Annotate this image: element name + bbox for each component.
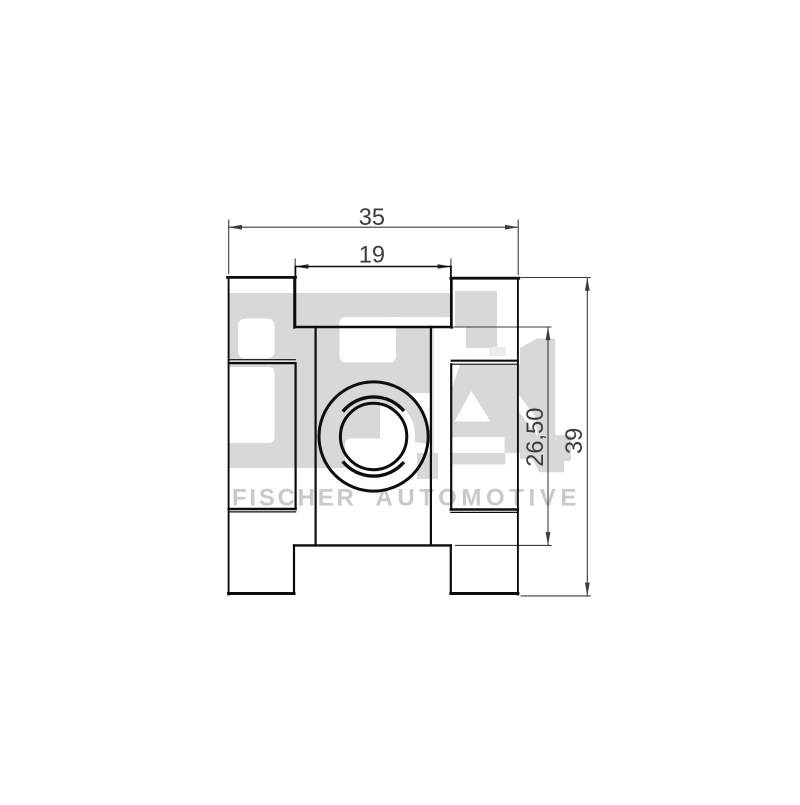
- svg-text:26,50: 26,50: [523, 408, 549, 467]
- svg-text:19: 19: [359, 243, 385, 269]
- svg-text:FISCHER AUTOMOTIVE: FISCHER AUTOMOTIVE: [232, 485, 581, 512]
- svg-text:39: 39: [562, 428, 588, 454]
- svg-text:35: 35: [359, 205, 385, 231]
